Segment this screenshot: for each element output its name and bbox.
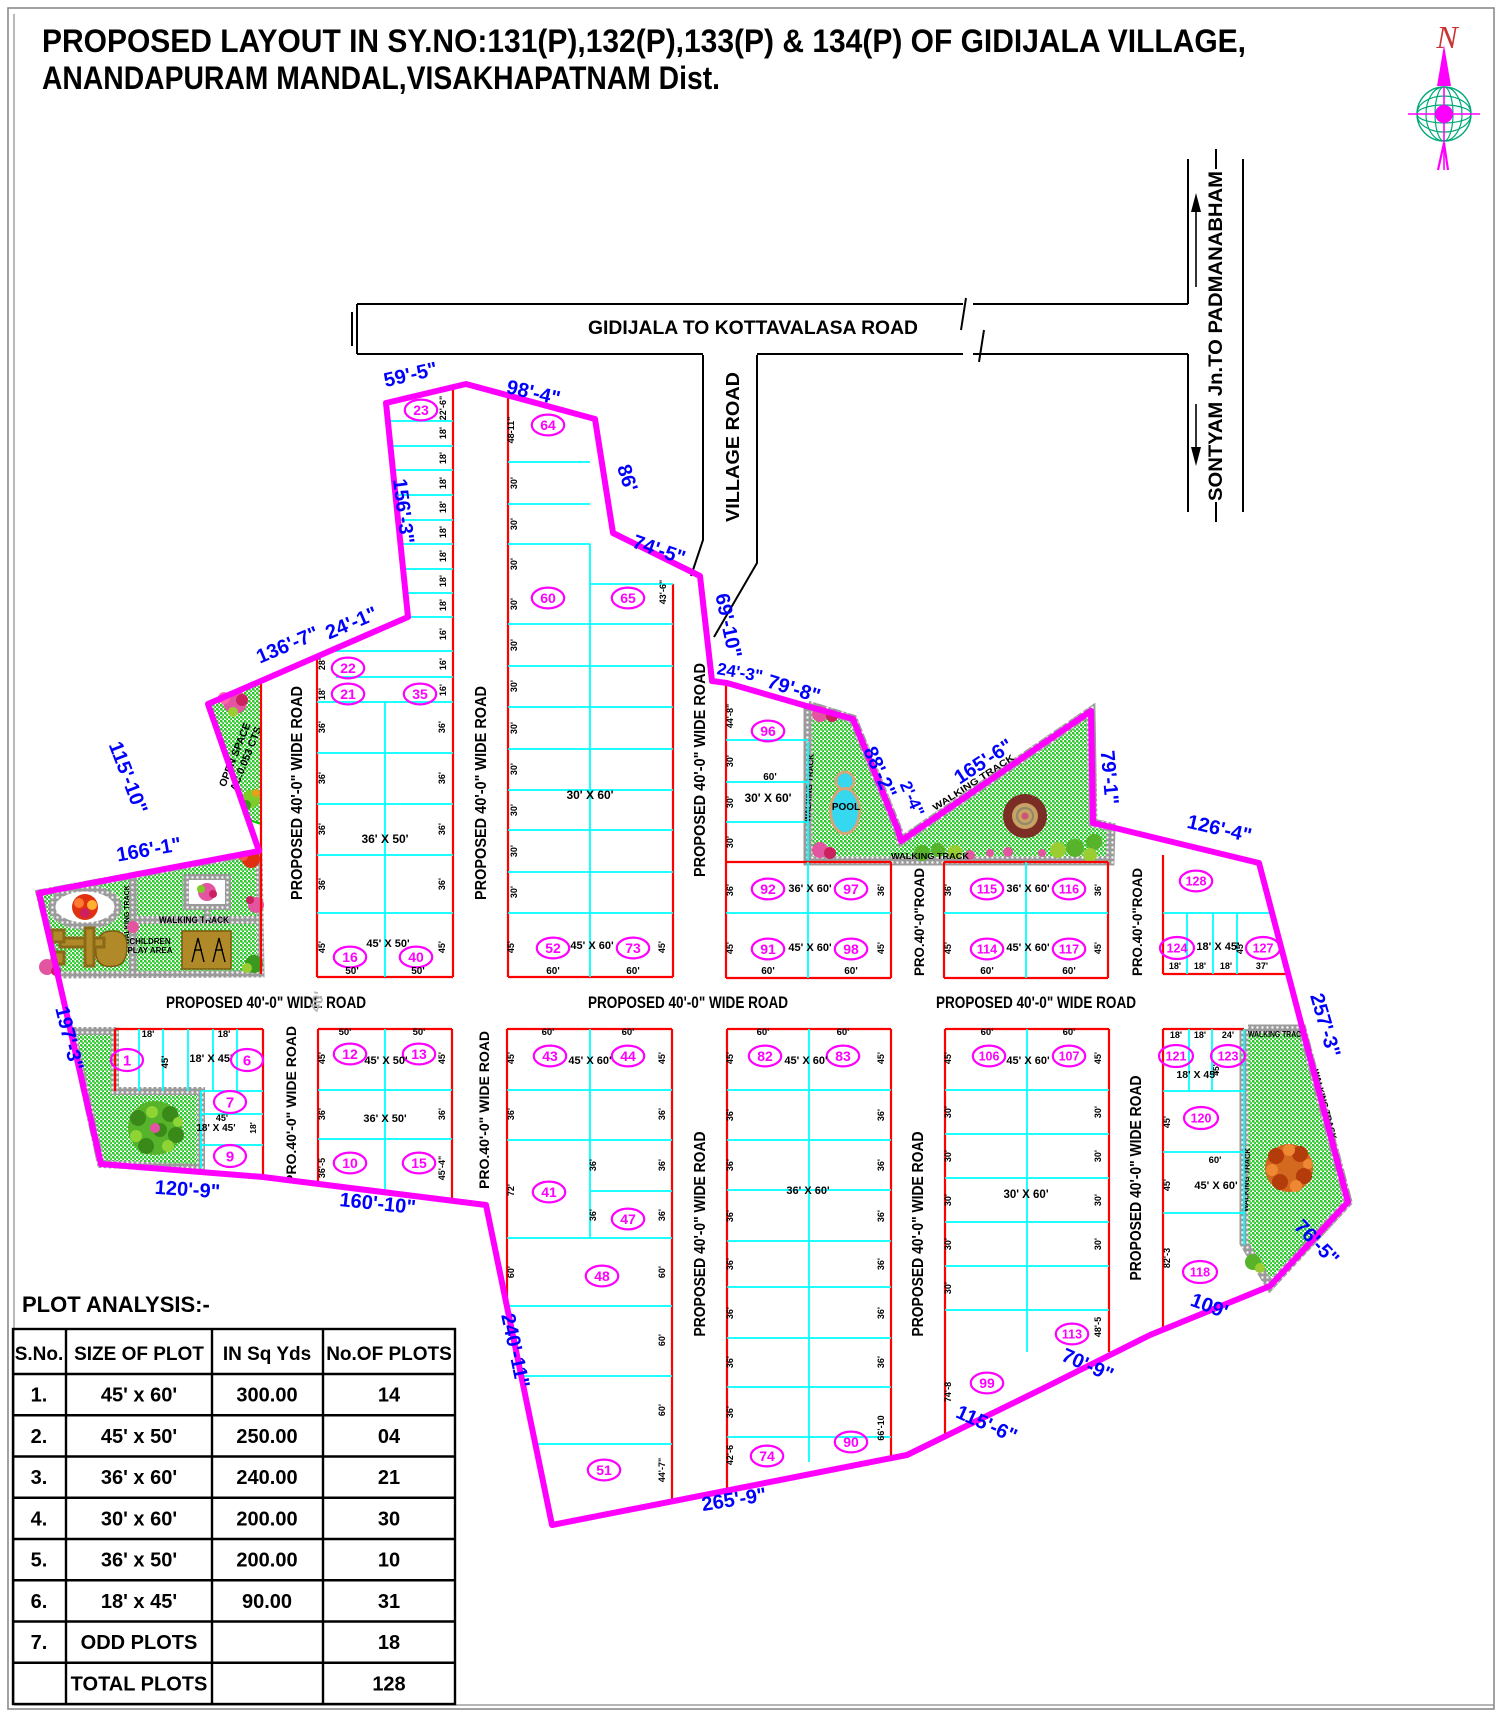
svg-text:23: 23 xyxy=(413,402,429,418)
svg-text:36': 36' xyxy=(437,823,447,835)
svg-text:15: 15 xyxy=(411,1155,427,1171)
svg-text:18': 18' xyxy=(438,477,448,489)
svg-text:114: 114 xyxy=(977,943,997,957)
svg-text:14: 14 xyxy=(378,1385,401,1407)
svg-text:36': 36' xyxy=(725,1210,735,1222)
svg-text:36'-5: 36'-5 xyxy=(317,1158,327,1178)
svg-text:45' X 50': 45' X 50' xyxy=(366,938,410,950)
svg-text:50': 50' xyxy=(339,1027,352,1038)
svg-text:82: 82 xyxy=(757,1048,773,1064)
svg-text:36' X 60': 36' X 60' xyxy=(788,883,832,895)
svg-text:48'-5: 48'-5 xyxy=(1093,1317,1103,1337)
svg-text:30': 30' xyxy=(509,763,519,775)
svg-text:60': 60' xyxy=(1062,966,1076,977)
svg-text:45' X 60': 45' X 60' xyxy=(1194,1180,1238,1192)
svg-text:TOTAL PLOTS: TOTAL PLOTS xyxy=(71,1673,208,1695)
svg-text:74: 74 xyxy=(759,1448,775,1464)
svg-text:30': 30' xyxy=(509,477,519,489)
svg-text:WALKING TRACK: WALKING TRACK xyxy=(159,915,229,925)
svg-text:60': 60' xyxy=(626,966,640,977)
svg-text:PRO.40'-0"ROAD: PRO.40'-0"ROAD xyxy=(912,868,927,976)
svg-text:21: 21 xyxy=(340,686,356,702)
svg-text:PRO.40'-0" WIDE ROAD: PRO.40'-0" WIDE ROAD xyxy=(476,1031,492,1189)
svg-text:45': 45' xyxy=(1093,1052,1103,1064)
svg-text:42'-6: 42'-6 xyxy=(725,1445,735,1465)
svg-text:IN Sq Yds: IN Sq Yds xyxy=(223,1344,311,1365)
svg-text:ODD PLOTS: ODD PLOTS xyxy=(81,1632,198,1654)
svg-text:60': 60' xyxy=(546,966,560,977)
svg-text:18' x 45': 18' x 45' xyxy=(101,1591,177,1613)
svg-text:45': 45' xyxy=(160,1056,171,1069)
svg-text:116: 116 xyxy=(1059,883,1079,897)
svg-text:18': 18' xyxy=(438,526,448,538)
svg-text:36': 36' xyxy=(725,1258,735,1270)
svg-text:36' X 60': 36' X 60' xyxy=(786,1185,830,1197)
svg-text:106: 106 xyxy=(979,1050,1000,1064)
svg-text:36': 36' xyxy=(588,1159,598,1171)
svg-text:ANANDAPURAM MANDAL,VISAKHAPATN: ANANDAPURAM MANDAL,VISAKHAPATNAM Dist. xyxy=(42,60,720,96)
svg-text:79'-1": 79'-1" xyxy=(1096,749,1123,805)
svg-text:60': 60' xyxy=(542,1027,555,1038)
svg-text:VILLAGE ROAD: VILLAGE ROAD xyxy=(723,372,743,522)
svg-text:18': 18' xyxy=(1194,1030,1206,1040)
svg-text:WALKING TRACK: WALKING TRACK xyxy=(891,851,970,861)
svg-text:36': 36' xyxy=(725,884,735,896)
svg-text:36' x 50': 36' x 50' xyxy=(101,1550,177,1572)
svg-text:36': 36' xyxy=(725,1307,735,1319)
svg-text:9: 9 xyxy=(226,1148,234,1165)
svg-text:51: 51 xyxy=(596,1462,612,1478)
svg-text:1: 1 xyxy=(123,1052,131,1069)
svg-text:30': 30' xyxy=(725,796,735,808)
svg-text:30: 30 xyxy=(378,1508,400,1530)
svg-text:48: 48 xyxy=(594,1268,610,1284)
svg-text:S.No.: S.No. xyxy=(15,1344,64,1365)
svg-text:60': 60' xyxy=(837,1027,850,1038)
svg-text:18': 18' xyxy=(1170,1030,1182,1040)
svg-text:30' X 60': 30' X 60' xyxy=(1003,1189,1048,1201)
svg-text:98: 98 xyxy=(843,941,859,957)
svg-text:37': 37' xyxy=(1256,961,1268,971)
svg-text:300.00: 300.00 xyxy=(236,1385,297,1407)
svg-text:60': 60' xyxy=(506,1266,516,1278)
svg-text:44'-8": 44'-8" xyxy=(725,704,735,728)
svg-text:6.: 6. xyxy=(31,1591,48,1613)
svg-text:PRO.40'-0"ROAD: PRO.40'-0"ROAD xyxy=(1130,868,1145,976)
svg-text:45': 45' xyxy=(437,941,447,953)
svg-text:PROPOSED 40'-0" WIDE ROAD: PROPOSED 40'-0" WIDE ROAD xyxy=(692,1132,709,1337)
svg-text:18': 18' xyxy=(438,575,448,587)
svg-text:60': 60' xyxy=(657,1266,667,1278)
svg-text:60: 60 xyxy=(540,590,556,606)
svg-text:48-11": 48-11" xyxy=(506,417,516,444)
svg-text:18': 18' xyxy=(218,1029,231,1040)
svg-text:60': 60' xyxy=(622,1027,635,1038)
svg-text:45': 45' xyxy=(725,1052,735,1064)
svg-text:43'-6": 43'-6" xyxy=(658,580,668,604)
svg-text:128: 128 xyxy=(1186,875,1207,889)
svg-text:120: 120 xyxy=(1191,1112,1212,1126)
svg-text:117: 117 xyxy=(1059,943,1079,957)
svg-text:45': 45' xyxy=(317,941,327,953)
svg-text:SONTYAM Jn.TO PADMANABHAM: SONTYAM Jn.TO PADMANABHAM xyxy=(1206,171,1227,501)
svg-text:127: 127 xyxy=(1253,942,1274,956)
svg-text:99: 99 xyxy=(979,1375,995,1391)
svg-text:30': 30' xyxy=(509,598,519,610)
svg-text:18': 18' xyxy=(317,688,327,700)
svg-text:60': 60' xyxy=(657,1404,667,1416)
svg-text:30' X 60': 30' X 60' xyxy=(566,788,613,802)
svg-text:30': 30' xyxy=(509,804,519,816)
svg-text:4.: 4. xyxy=(31,1508,48,1530)
svg-text:50': 50' xyxy=(411,966,425,977)
svg-text:60': 60' xyxy=(761,966,775,977)
svg-text:60': 60' xyxy=(980,966,994,977)
svg-text:30': 30' xyxy=(509,680,519,692)
svg-text:45' X 60': 45' X 60' xyxy=(568,1055,612,1067)
svg-text:72': 72' xyxy=(506,1184,516,1196)
svg-text:45': 45' xyxy=(943,942,953,954)
svg-text:45' X 60': 45' X 60' xyxy=(570,940,614,952)
svg-text:N: N xyxy=(1435,19,1459,55)
svg-text:36': 36' xyxy=(1093,884,1103,896)
svg-text:10: 10 xyxy=(342,1155,358,1171)
svg-text:36': 36' xyxy=(657,1108,667,1120)
svg-text:45': 45' xyxy=(317,1052,327,1064)
svg-text:40: 40 xyxy=(408,949,424,965)
svg-text:45': 45' xyxy=(506,1052,516,1064)
svg-text:18': 18' xyxy=(438,452,448,464)
svg-text:POOL: POOL xyxy=(832,802,860,813)
svg-text:30': 30' xyxy=(509,518,519,530)
svg-text:36': 36' xyxy=(725,1406,735,1418)
svg-text:97: 97 xyxy=(843,881,859,897)
svg-text:18' X 45': 18' X 45' xyxy=(1196,941,1240,953)
svg-text:52: 52 xyxy=(545,940,561,956)
svg-text:60': 60' xyxy=(981,1027,994,1038)
svg-text:45': 45' xyxy=(1211,1064,1221,1075)
svg-text:45': 45' xyxy=(876,942,886,954)
svg-text:18': 18' xyxy=(438,501,448,513)
svg-text:36': 36' xyxy=(876,1210,886,1222)
svg-text:90: 90 xyxy=(843,1434,859,1450)
svg-text:36': 36' xyxy=(657,1209,667,1221)
svg-text:113: 113 xyxy=(1062,1328,1082,1342)
svg-text:18': 18' xyxy=(438,550,448,562)
svg-text:30': 30' xyxy=(509,639,519,651)
svg-text:PRO.40'-0" WIDE ROAD: PRO.40'-0" WIDE ROAD xyxy=(283,1026,299,1184)
svg-text:45': 45' xyxy=(657,941,667,953)
svg-text:36': 36' xyxy=(317,878,327,890)
svg-text:45': 45' xyxy=(1162,1116,1172,1128)
svg-text:18': 18' xyxy=(142,1029,155,1040)
svg-text:45': 45' xyxy=(1162,1179,1172,1191)
svg-text:30': 30' xyxy=(509,886,519,898)
svg-text:6: 6 xyxy=(243,1052,251,1069)
svg-text:45': 45' xyxy=(943,1052,953,1064)
svg-text:45' x 60': 45' x 60' xyxy=(101,1385,177,1407)
svg-text:16': 16' xyxy=(438,628,448,640)
svg-text:16': 16' xyxy=(438,684,448,696)
svg-text:66'-10: 66'-10 xyxy=(876,1415,886,1440)
svg-text:44: 44 xyxy=(620,1048,636,1064)
svg-text:36': 36' xyxy=(876,1356,886,1368)
svg-text:45': 45' xyxy=(1093,942,1103,954)
svg-text:91: 91 xyxy=(760,941,776,957)
svg-text:30': 30' xyxy=(725,755,735,767)
svg-text:GIDIJALA TO KOTTAVALASA ROAD: GIDIJALA TO KOTTAVALASA ROAD xyxy=(588,318,918,339)
svg-text:50': 50' xyxy=(345,966,359,977)
svg-text:45': 45' xyxy=(876,1052,886,1064)
svg-text:30': 30' xyxy=(509,558,519,570)
svg-text:5.: 5. xyxy=(31,1550,48,1572)
svg-text:124: 124 xyxy=(1167,942,1188,956)
svg-text:36': 36' xyxy=(876,1109,886,1121)
svg-text:50': 50' xyxy=(413,1027,426,1038)
svg-text:18': 18' xyxy=(1220,961,1232,971)
svg-text:30': 30' xyxy=(509,845,519,857)
svg-text:36': 36' xyxy=(437,772,447,784)
svg-text:31: 31 xyxy=(378,1591,400,1613)
svg-text:41: 41 xyxy=(541,1184,557,1200)
svg-text:18': 18' xyxy=(248,1122,258,1133)
svg-text:123: 123 xyxy=(1218,1050,1239,1064)
svg-text:PROPOSED 40'-0" WIDE ROAD: PROPOSED 40'-0" WIDE ROAD xyxy=(910,1132,927,1337)
svg-text:36': 36' xyxy=(437,1108,447,1120)
svg-text:PLOT ANALYSIS:-: PLOT ANALYSIS:- xyxy=(22,1292,210,1317)
svg-text:45' X 60': 45' X 60' xyxy=(1006,1055,1050,1067)
svg-text:PROPOSED LAYOUT IN SY.NO:131(P: PROPOSED LAYOUT IN SY.NO:131(P),132(P),1… xyxy=(42,23,1246,59)
svg-text:30': 30' xyxy=(943,1194,953,1206)
svg-text:PROPOSED 40'-0" WIDE ROAD: PROPOSED 40'-0" WIDE ROAD xyxy=(588,993,788,1012)
svg-text:118: 118 xyxy=(1190,1266,1210,1280)
svg-text:30': 30' xyxy=(943,1282,953,1294)
svg-text:36': 36' xyxy=(317,823,327,835)
svg-text:64: 64 xyxy=(540,417,556,433)
svg-text:45' X 60': 45' X 60' xyxy=(788,942,832,954)
svg-text:200.00: 200.00 xyxy=(236,1550,297,1572)
svg-text:45' X 60': 45' X 60' xyxy=(1006,942,1050,954)
svg-text:7: 7 xyxy=(226,1094,234,1111)
svg-text:18' X 45': 18' X 45' xyxy=(196,1123,235,1134)
svg-text:45': 45' xyxy=(437,1052,447,1064)
svg-text:18' X 45': 18' X 45' xyxy=(189,1053,233,1065)
svg-text:30' x 60': 30' x 60' xyxy=(101,1508,177,1530)
svg-text:36': 36' xyxy=(437,721,447,733)
svg-text:7.: 7. xyxy=(31,1632,48,1654)
svg-text:36': 36' xyxy=(588,1209,598,1221)
svg-text:120'-9": 120'-9" xyxy=(154,1177,221,1204)
svg-text:36': 36' xyxy=(437,878,447,890)
svg-text:45': 45' xyxy=(657,1052,667,1064)
svg-text:60': 60' xyxy=(757,1027,770,1038)
svg-text:18': 18' xyxy=(1169,961,1181,971)
svg-text:83: 83 xyxy=(835,1048,851,1064)
svg-text:36' X 50': 36' X 50' xyxy=(363,1113,407,1125)
svg-text:200.00: 200.00 xyxy=(236,1508,297,1530)
svg-text:35: 35 xyxy=(412,686,428,702)
svg-text:21: 21 xyxy=(378,1467,400,1489)
svg-text:115: 115 xyxy=(977,883,997,897)
svg-text:36': 36' xyxy=(506,1108,516,1120)
svg-text:2.: 2. xyxy=(31,1426,48,1448)
svg-text:36': 36' xyxy=(317,721,327,733)
svg-text:22'-6": 22'-6" xyxy=(438,396,448,420)
svg-text:36': 36' xyxy=(725,1356,735,1368)
svg-text:04: 04 xyxy=(378,1426,401,1448)
svg-text:24': 24' xyxy=(1222,1030,1234,1040)
svg-text:73: 73 xyxy=(625,940,641,956)
svg-text:36': 36' xyxy=(725,1109,735,1121)
svg-text:43: 43 xyxy=(542,1048,558,1064)
svg-text:30': 30' xyxy=(943,1238,953,1250)
svg-text:121: 121 xyxy=(1166,1050,1187,1064)
svg-text:96: 96 xyxy=(760,723,776,739)
svg-text:36': 36' xyxy=(876,1159,886,1171)
svg-text:90.00: 90.00 xyxy=(242,1591,292,1613)
svg-text:36': 36' xyxy=(943,884,953,896)
svg-text:30': 30' xyxy=(943,1150,953,1162)
svg-text:92: 92 xyxy=(760,881,776,897)
svg-text:PROPOSED 40'-0" WIDE ROAD: PROPOSED 40'-0" WIDE ROAD xyxy=(936,993,1136,1012)
svg-text:30': 30' xyxy=(1093,1150,1103,1162)
svg-text:60': 60' xyxy=(657,1334,667,1346)
svg-text:18: 18 xyxy=(378,1632,400,1654)
svg-text:36' x 60': 36' x 60' xyxy=(101,1467,177,1489)
svg-text:45': 45' xyxy=(216,1113,228,1123)
svg-text:30': 30' xyxy=(725,836,735,848)
svg-text:240.00: 240.00 xyxy=(236,1467,297,1489)
svg-text:36': 36' xyxy=(317,1108,327,1120)
svg-text:28': 28' xyxy=(317,658,327,670)
svg-text:WALKING TRACK: WALKING TRACK xyxy=(1248,1029,1307,1039)
svg-text:36': 36' xyxy=(876,1307,886,1319)
svg-text:PROPOSED 40'-0" WIDE ROAD: PROPOSED 40'-0" WIDE ROAD xyxy=(289,686,306,900)
svg-text:74'-8: 74'-8 xyxy=(943,1382,953,1402)
svg-text:45': 45' xyxy=(725,942,735,954)
svg-text:PROPOSED 40'-0" WIDE ROAD: PROPOSED 40'-0" WIDE ROAD xyxy=(473,686,490,900)
svg-text:107: 107 xyxy=(1059,1050,1080,1064)
svg-text:60': 60' xyxy=(1063,1027,1076,1038)
svg-text:No.OF PLOTS: No.OF PLOTS xyxy=(326,1344,452,1365)
svg-text:47: 47 xyxy=(620,1211,636,1227)
svg-text:45' X 50': 45' X 50' xyxy=(364,1055,408,1067)
svg-text:18': 18' xyxy=(1194,961,1206,971)
svg-text:30': 30' xyxy=(943,1106,953,1118)
svg-text:22: 22 xyxy=(340,660,356,676)
svg-text:60': 60' xyxy=(844,966,858,977)
svg-text:30' X 60': 30' X 60' xyxy=(744,791,791,805)
svg-text:36' X 60': 36' X 60' xyxy=(1006,883,1050,895)
svg-text:82'-3: 82'-3 xyxy=(1162,1248,1172,1268)
svg-text:45' X 60': 45' X 60' xyxy=(784,1055,828,1067)
svg-text:13: 13 xyxy=(411,1046,427,1062)
svg-text:44'-7": 44'-7" xyxy=(657,1458,667,1482)
svg-text:45' x 50': 45' x 50' xyxy=(101,1426,177,1448)
svg-text:18': 18' xyxy=(438,599,448,611)
svg-text:36': 36' xyxy=(657,1159,667,1171)
svg-text:12: 12 xyxy=(342,1046,358,1062)
svg-text:128: 128 xyxy=(372,1673,405,1695)
svg-text:18': 18' xyxy=(438,427,448,439)
svg-text:45': 45' xyxy=(1235,942,1245,954)
svg-text:60': 60' xyxy=(763,772,777,783)
svg-text:16': 16' xyxy=(438,658,448,670)
svg-text:PROPOSED 40'-0" WIDE ROAD: PROPOSED 40'-0" WIDE ROAD xyxy=(692,663,709,877)
svg-text:36': 36' xyxy=(725,1159,735,1171)
svg-text:36': 36' xyxy=(317,772,327,784)
svg-text:65: 65 xyxy=(620,590,636,606)
svg-text:30': 30' xyxy=(1093,1238,1103,1250)
svg-text:45': 45' xyxy=(506,941,516,953)
svg-text:SIZE OF PLOT: SIZE OF PLOT xyxy=(74,1344,204,1365)
svg-text:60': 60' xyxy=(1209,1155,1222,1166)
svg-text:250.00: 250.00 xyxy=(236,1426,297,1448)
svg-text:PROPOSED 40'-0" WIDE ROAD: PROPOSED 40'-0" WIDE ROAD xyxy=(1128,1076,1145,1281)
svg-text:16: 16 xyxy=(342,949,358,965)
svg-text:36' X 50': 36' X 50' xyxy=(361,832,408,846)
svg-text:10: 10 xyxy=(378,1550,400,1572)
svg-text:PROPOSED 40'-0" WIDE ROAD: PROPOSED 40'-0" WIDE ROAD xyxy=(166,993,366,1012)
svg-text:1.: 1. xyxy=(31,1385,48,1407)
svg-text:45'-4": 45'-4" xyxy=(437,1156,447,1180)
svg-text:PLAY AREA: PLAY AREA xyxy=(127,946,172,955)
svg-text:36': 36' xyxy=(876,1258,886,1270)
svg-text:30': 30' xyxy=(509,722,519,734)
svg-text:3.: 3. xyxy=(31,1467,48,1489)
svg-text:CHILDREN: CHILDREN xyxy=(129,937,171,946)
svg-text:30': 30' xyxy=(1093,1106,1103,1118)
svg-text:36': 36' xyxy=(876,884,886,896)
svg-text:30': 30' xyxy=(1093,1194,1103,1206)
